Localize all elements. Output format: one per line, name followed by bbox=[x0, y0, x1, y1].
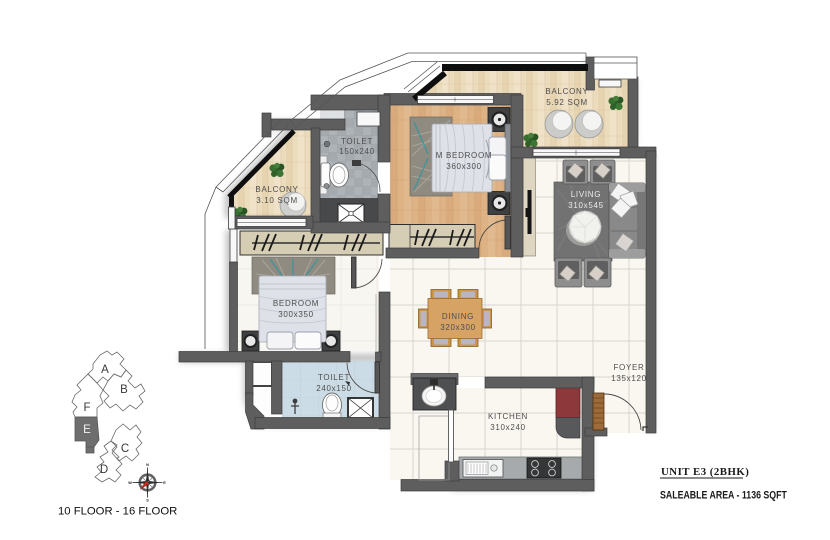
svg-text:310x545: 310x545 bbox=[568, 201, 604, 210]
svg-text:300x350: 300x350 bbox=[278, 310, 314, 319]
svg-text:TOILET: TOILET bbox=[341, 137, 373, 146]
svg-text:240x150: 240x150 bbox=[316, 384, 352, 393]
svg-text:N: N bbox=[146, 463, 149, 467]
svg-text:LIVING: LIVING bbox=[571, 190, 601, 199]
svg-text:3.10 SQM: 3.10 SQM bbox=[256, 196, 298, 205]
svg-text:F: F bbox=[83, 402, 90, 414]
svg-text:A: A bbox=[101, 364, 109, 376]
svg-text:BEDROOM: BEDROOM bbox=[273, 299, 319, 308]
svg-text:C: C bbox=[121, 443, 129, 455]
svg-text:135x120: 135x120 bbox=[611, 374, 647, 383]
svg-text:S: S bbox=[146, 499, 149, 503]
svg-text:BALCONY: BALCONY bbox=[545, 87, 588, 96]
svg-text:E: E bbox=[163, 481, 166, 485]
svg-text:360x300: 360x300 bbox=[446, 162, 482, 171]
svg-text:UNIT E3 (2BHK): UNIT E3 (2BHK) bbox=[661, 466, 749, 478]
svg-text:DINING: DINING bbox=[442, 312, 474, 321]
svg-text:TOILET: TOILET bbox=[318, 373, 350, 382]
svg-text:5.92 SQM: 5.92 SQM bbox=[546, 98, 588, 107]
svg-text:KITCHEN: KITCHEN bbox=[488, 412, 528, 421]
svg-text:E: E bbox=[83, 424, 91, 436]
svg-text:FOYER: FOYER bbox=[613, 363, 644, 372]
svg-text:320x300: 320x300 bbox=[440, 323, 476, 332]
svg-text:D: D bbox=[100, 464, 108, 476]
svg-text:310x240: 310x240 bbox=[490, 423, 526, 432]
svg-text:150x240: 150x240 bbox=[339, 147, 375, 156]
svg-text:SALEABLE AREA - 1136 SQFT: SALEABLE AREA - 1136 SQFT bbox=[660, 490, 787, 502]
svg-text:BALCONY: BALCONY bbox=[255, 185, 298, 194]
svg-text:W: W bbox=[128, 481, 132, 485]
svg-text:M BEDROOM: M BEDROOM bbox=[436, 151, 493, 160]
svg-text:B: B bbox=[120, 384, 128, 396]
svg-text:10 FLOOR - 16 FLOOR: 10 FLOOR - 16 FLOOR bbox=[58, 506, 177, 518]
